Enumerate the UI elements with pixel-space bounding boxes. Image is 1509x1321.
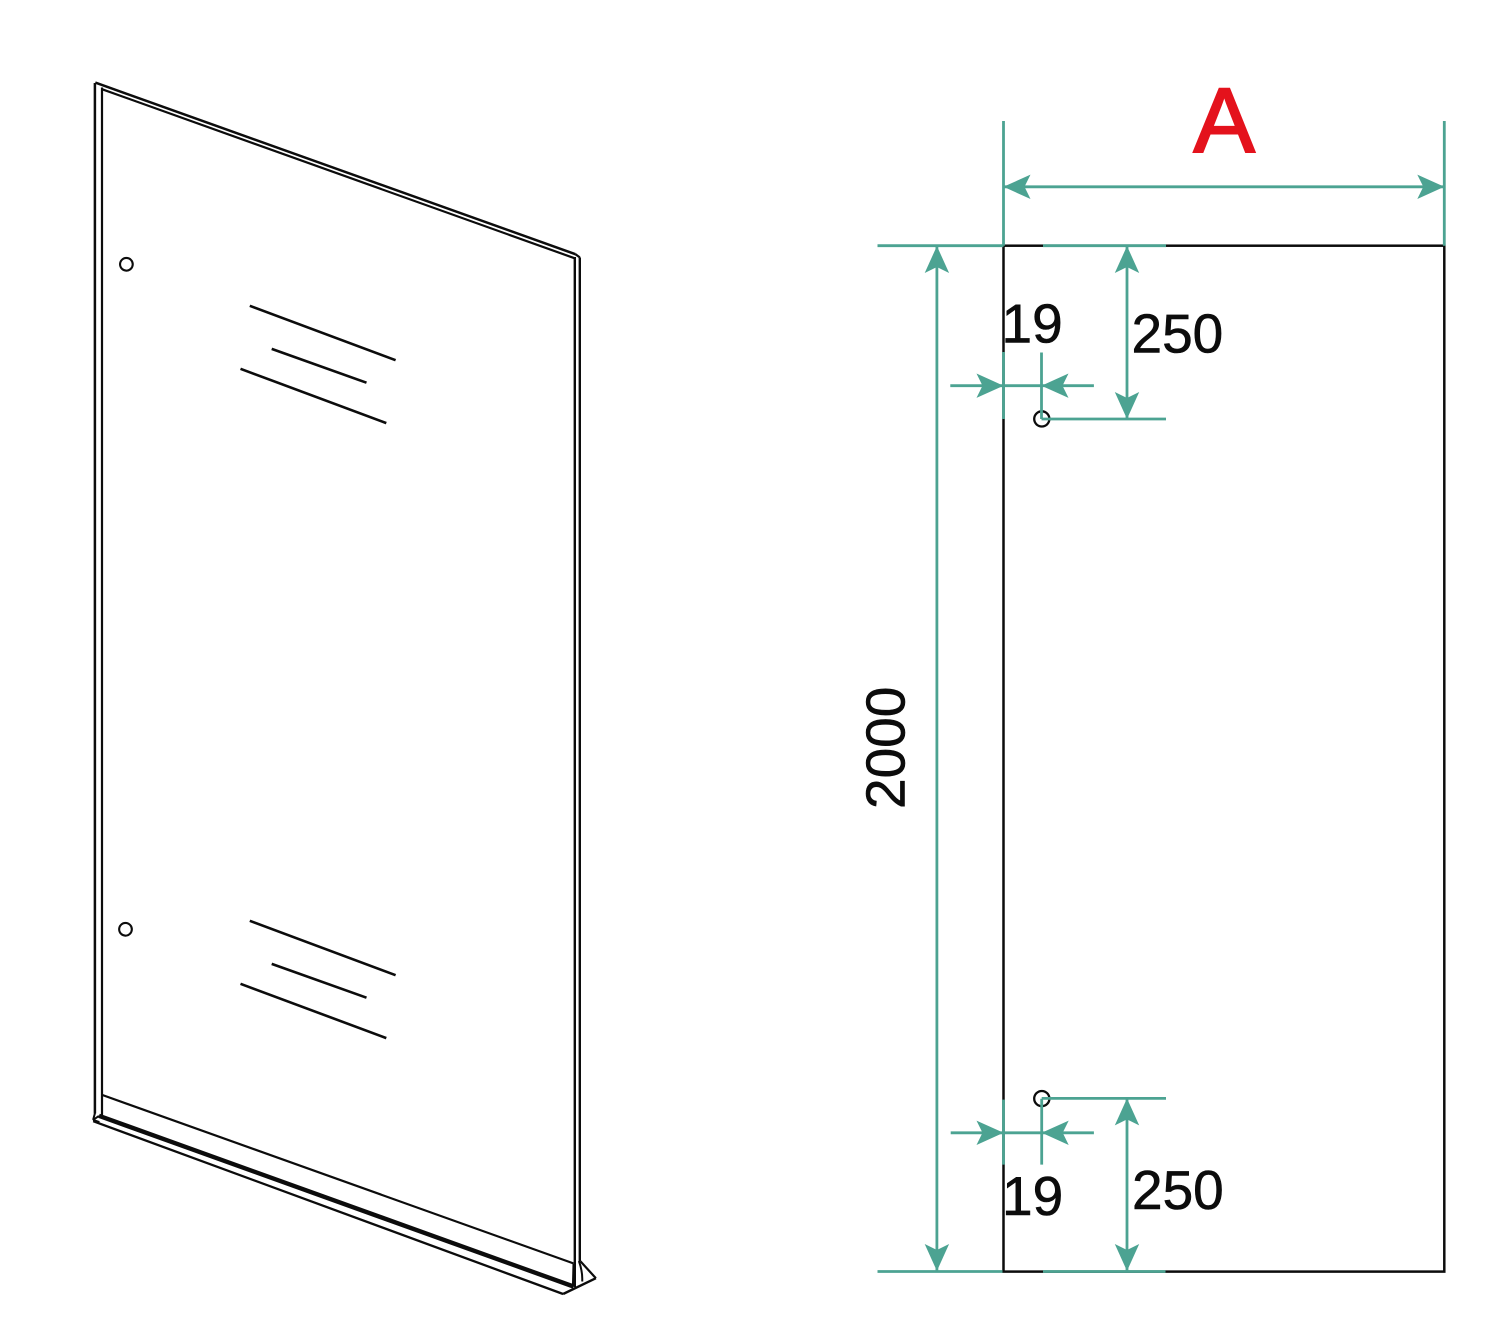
svg-text:19: 19 [1002,293,1063,355]
svg-text:19: 19 [1002,1165,1063,1227]
svg-text:250: 250 [1132,303,1224,365]
svg-text:2000: 2000 [855,687,917,809]
svg-text:A: A [1194,70,1256,172]
svg-text:250: 250 [1132,1159,1224,1221]
